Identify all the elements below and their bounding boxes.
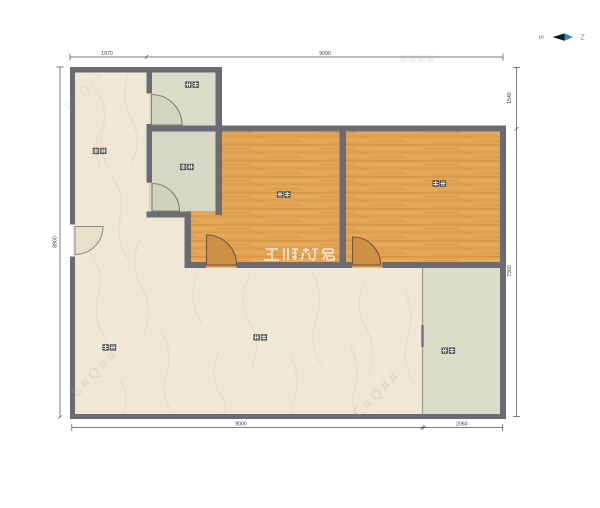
svg-text:1540: 1540 (507, 92, 513, 104)
svg-text:1970: 1970 (101, 51, 113, 57)
svg-text:Z: Z (580, 35, 585, 42)
svg-text:8900: 8900 (53, 236, 59, 248)
svg-text:2060: 2060 (456, 422, 468, 428)
svg-text:9000: 9000 (235, 422, 247, 428)
svg-text:7360: 7360 (507, 265, 513, 277)
svg-text:9090: 9090 (319, 51, 331, 57)
svg-text:S: S (537, 35, 543, 39)
